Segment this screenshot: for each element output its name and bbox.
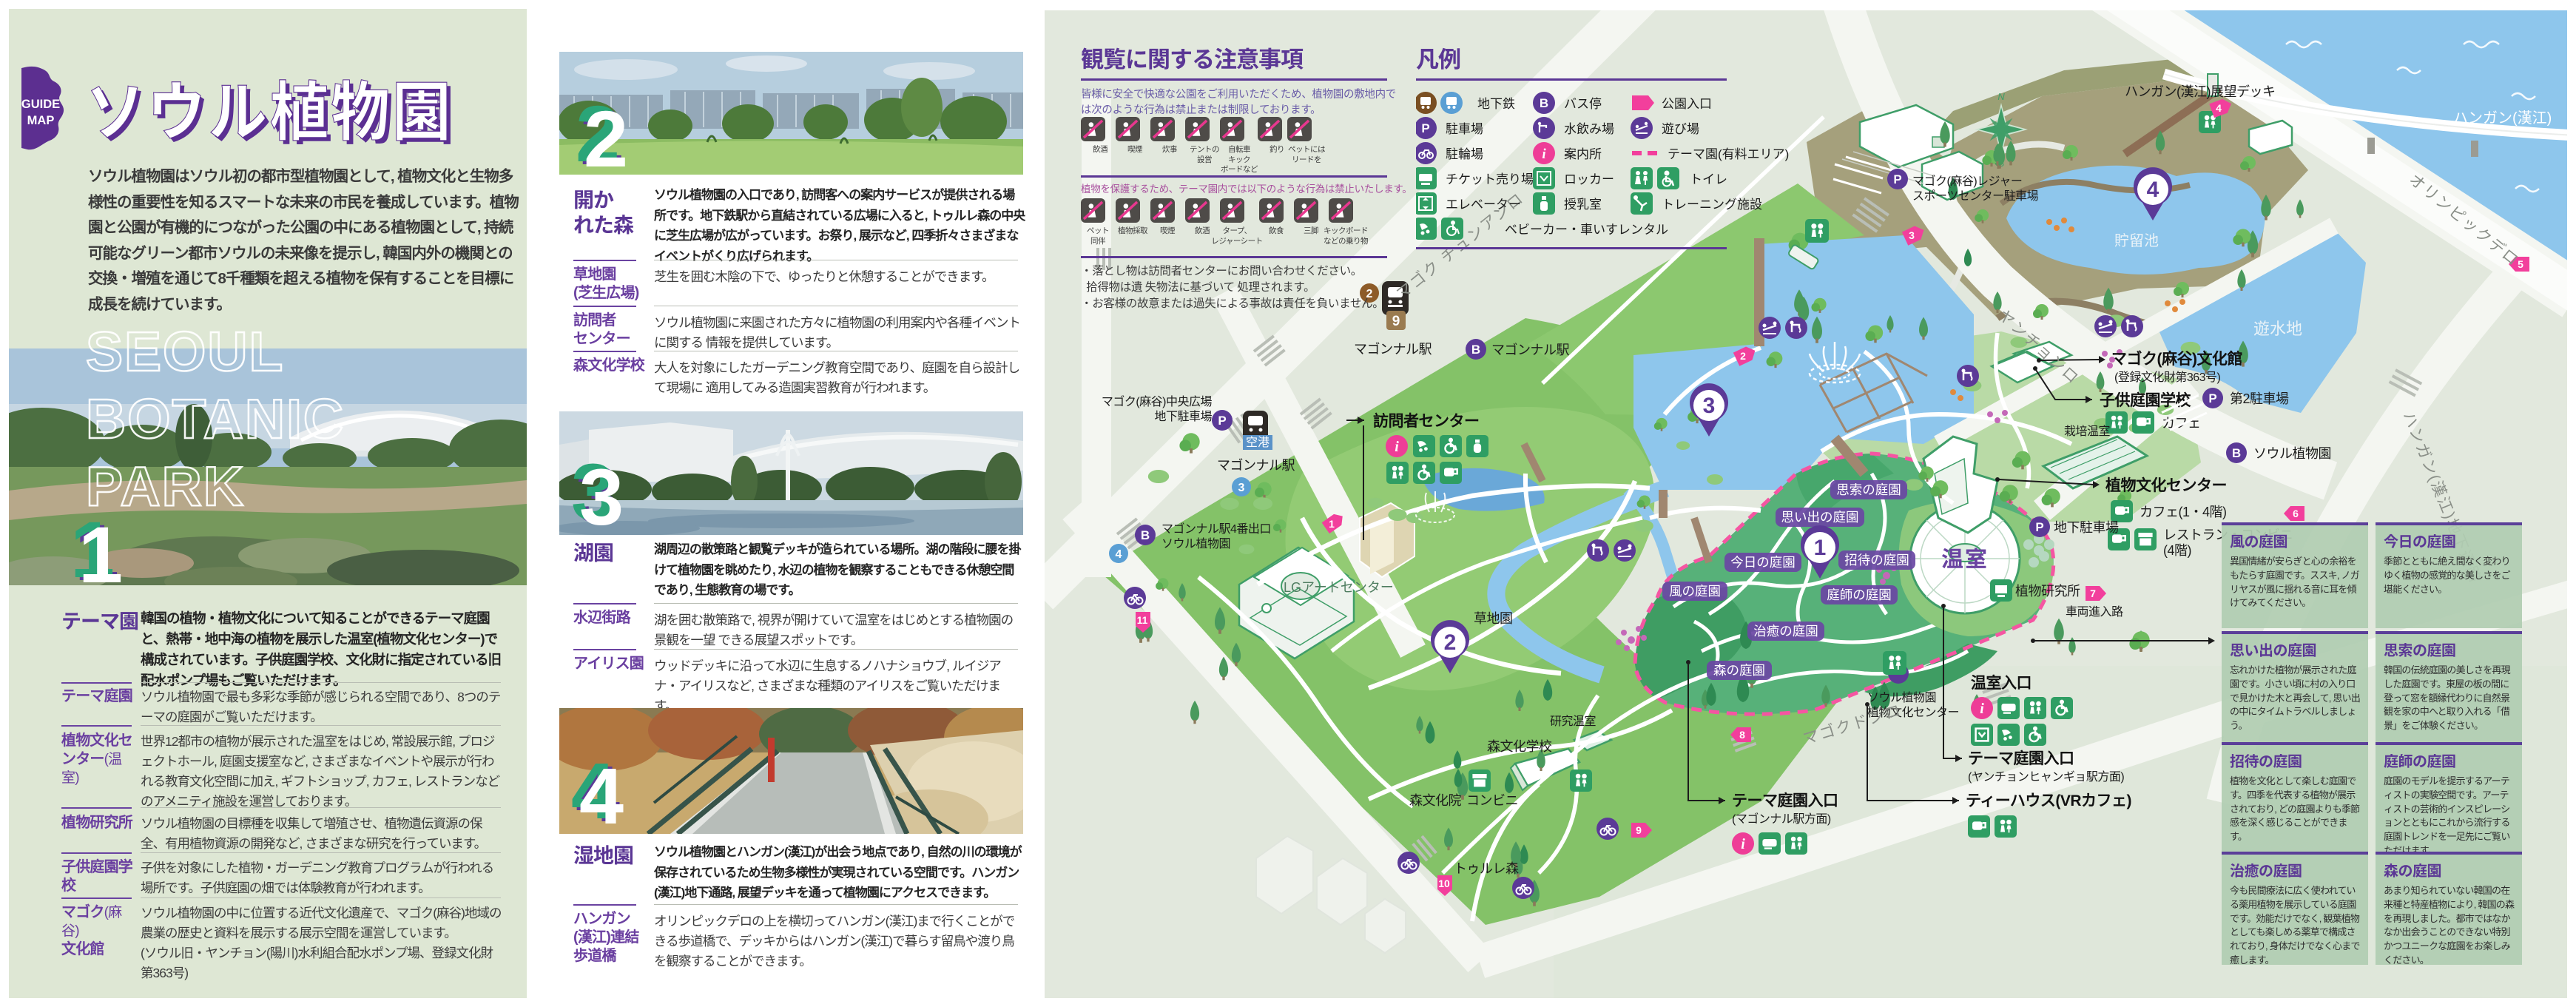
svg-text:(マゴンナル駅方面): (マゴンナル駅方面) — [1732, 812, 1831, 826]
svg-text:N: N — [1997, 91, 2005, 102]
svg-text:第2駐車場: 第2駐車場 — [2230, 391, 2289, 406]
svg-text:テーマ庭園入口: テーマ庭園入口 — [1968, 750, 2074, 767]
svg-text:森文化院: 森文化院 — [1409, 793, 1461, 808]
svg-text:遊水地: 遊水地 — [2253, 320, 2302, 338]
svg-text:チケット売り場: チケット売り場 — [1446, 172, 1534, 186]
svg-text:10: 10 — [1438, 878, 1450, 889]
svg-text:マゴンナル駅: マゴンナル駅 — [1354, 342, 1432, 357]
svg-text:2: 2 — [1740, 350, 1746, 362]
svg-text:i: i — [1395, 439, 1399, 455]
svg-text:庭師の庭園: 庭師の庭園 — [1827, 587, 1892, 602]
svg-text:マゴク(麻谷)中央広場: マゴク(麻谷)中央広場 — [1102, 394, 1213, 408]
svg-text:今日の庭園: 今日の庭園 — [1730, 555, 1796, 570]
svg-text:2: 2 — [1444, 630, 1457, 655]
svg-text:i: i — [1542, 146, 1546, 162]
svg-text:ハンガン(漢江)展望デッキ: ハンガン(漢江)展望デッキ — [2125, 84, 2276, 99]
svg-text:LGアートセンター: LGアートセンター — [1284, 580, 1394, 595]
svg-text:ベビーカー・車いすレンタル: ベビーカー・車いすレンタル — [1505, 223, 1668, 237]
svg-text:ソウル植物園: ソウル植物園 — [2253, 446, 2331, 461]
svg-text:コンビニ: コンビニ — [1466, 793, 1518, 808]
svg-text:マゴンナル駅4番出口: マゴンナル駅4番出口 — [1161, 522, 1271, 536]
svg-text:3: 3 — [1703, 394, 1716, 418]
svg-text:(4階): (4階) — [2163, 543, 2191, 558]
svg-text:マゴク(麻谷)文化館: マゴク(麻谷)文化館 — [2111, 350, 2242, 368]
svg-text:植物文化センター: 植物文化センター — [2105, 476, 2227, 494]
svg-text:マゴンナル駅: マゴンナル駅 — [1491, 343, 1569, 357]
svg-text:8: 8 — [1739, 729, 1745, 741]
svg-text:トレーニング施設: トレーニング施設 — [1662, 198, 1762, 212]
svg-text:ハンガン(漢江): ハンガン(漢江) — [2453, 110, 2552, 127]
svg-text:MAP: MAP — [27, 114, 55, 127]
svg-text:地下駐車場: 地下駐車場 — [1154, 410, 1212, 423]
svg-text:1: 1 — [1329, 518, 1335, 530]
svg-text:4: 4 — [1116, 548, 1122, 561]
svg-text:思索の庭園: 思索の庭園 — [1836, 482, 1901, 497]
svg-text:i: i — [1980, 701, 1984, 717]
svg-text:スポーツセンター駐車場: スポーツセンター駐車場 — [1912, 189, 2039, 203]
svg-text:訪問者センター: 訪問者センター — [1373, 412, 1480, 430]
svg-text:ロッカー: ロッカー — [1564, 172, 1614, 186]
svg-text:P: P — [1421, 121, 1429, 135]
svg-text:車両進入路: 車両進入路 — [2066, 605, 2123, 619]
svg-text:4: 4 — [2147, 178, 2159, 202]
svg-text:P: P — [2035, 520, 2043, 534]
svg-text:トイレ: トイレ — [1690, 172, 1727, 186]
svg-text:4: 4 — [2216, 102, 2222, 114]
svg-text:マゴンナル駅: マゴンナル駅 — [1217, 458, 1295, 473]
svg-text:マゴク(麻谷)レジャー: マゴク(麻谷)レジャー — [1912, 174, 2022, 188]
svg-text:テーマ園(有料エリア): テーマ園(有料エリア) — [1668, 147, 1789, 161]
svg-text:トゥルレ森: トゥルレ森 — [1454, 861, 1519, 876]
svg-text:栽培温室: 栽培温室 — [2064, 425, 2111, 438]
svg-text:授乳室: 授乳室 — [1564, 198, 1602, 212]
svg-text:テーマ庭園入口: テーマ庭園入口 — [1732, 792, 1838, 809]
svg-text:駐輪場: 駐輪場 — [1446, 147, 1483, 161]
svg-text:P: P — [1893, 172, 1901, 186]
svg-text:草地園: 草地園 — [1474, 611, 1513, 626]
svg-text:貯留池: 貯留池 — [2114, 232, 2159, 249]
svg-text:9: 9 — [1392, 314, 1400, 329]
svg-text:空港: 空港 — [1246, 436, 1270, 449]
svg-text:(登録文化財第363号): (登録文化財第363号) — [2114, 371, 2221, 384]
svg-text:エレベーター: エレベーター — [1446, 198, 1521, 212]
svg-text:B: B — [1540, 96, 1548, 110]
svg-text:研究温室: 研究温室 — [1550, 715, 1596, 728]
svg-text:招待の庭園: 招待の庭園 — [1844, 553, 1909, 568]
svg-text:7: 7 — [2090, 587, 2096, 599]
svg-text:P: P — [2208, 391, 2216, 405]
svg-text:1: 1 — [1814, 536, 1827, 560]
svg-text:3: 3 — [1238, 482, 1245, 494]
svg-text:温室入口: 温室入口 — [1971, 674, 2032, 692]
svg-text:3: 3 — [1909, 229, 1915, 241]
svg-text:ソウル植物園: ソウル植物園 — [1867, 691, 1936, 704]
svg-text:P: P — [1218, 414, 1226, 428]
svg-text:森の庭園: 森の庭園 — [1713, 663, 1765, 678]
svg-text:植物研究所: 植物研究所 — [2015, 584, 2080, 599]
svg-text:ティーハウス(VRカフェ): ティーハウス(VRカフェ) — [1966, 792, 2131, 809]
svg-text:子供庭園学校: 子供庭園学校 — [2100, 391, 2191, 409]
svg-text:B: B — [1471, 343, 1480, 357]
svg-text:森文化学校: 森文化学校 — [1487, 739, 1552, 754]
svg-text:6: 6 — [2293, 508, 2299, 519]
svg-text:カフェ(1・4階): カフェ(1・4階) — [2140, 505, 2227, 519]
svg-text:治癒の庭園: 治癒の庭園 — [1753, 624, 1818, 639]
svg-text:遊び場: 遊び場 — [1662, 122, 1699, 136]
svg-text:駐車場: 駐車場 — [1446, 122, 1483, 136]
svg-text:i: i — [1741, 836, 1745, 852]
svg-text:(ヤンチョンヒャンギョ駅方面): (ヤンチョンヒャンギョ駅方面) — [1968, 770, 2124, 784]
svg-text:GUIDE: GUIDE — [21, 98, 60, 111]
svg-text:B: B — [1141, 528, 1150, 542]
svg-text:水飲み場: 水飲み場 — [1564, 122, 1614, 136]
svg-text:バス停: バス停 — [1564, 97, 1602, 111]
svg-text:B: B — [2232, 446, 2241, 460]
svg-text:地下鉄: 地下鉄 — [1477, 97, 1515, 111]
svg-text:風の庭園: 風の庭園 — [1669, 584, 1721, 599]
svg-text:11: 11 — [1137, 614, 1148, 626]
svg-text:公園入口: 公園入口 — [1662, 97, 1712, 111]
svg-text:思い出の庭園: 思い出の庭園 — [1781, 510, 1859, 525]
svg-text:地下駐車場: 地下駐車場 — [2054, 520, 2119, 535]
svg-text:案内所: 案内所 — [1564, 147, 1602, 161]
svg-text:ソウル植物園: ソウル植物園 — [1161, 537, 1230, 550]
svg-text:9: 9 — [1636, 824, 1642, 836]
